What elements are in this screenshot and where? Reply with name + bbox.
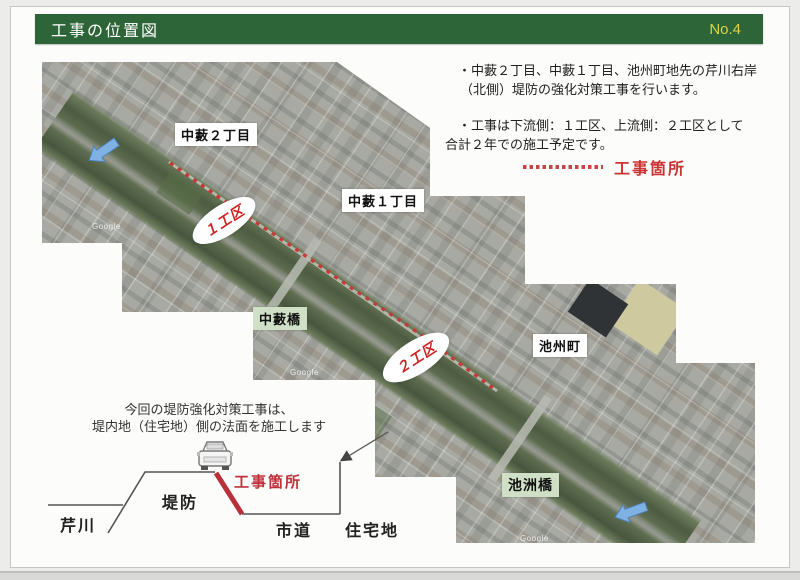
page-title: 工事の位置図: [35, 17, 159, 41]
residential-label: 住宅地: [345, 517, 399, 541]
bridge-label-chisu: 池洲橋: [502, 473, 559, 497]
river-label: 芹川: [60, 512, 96, 536]
flow-arrow-icon: [84, 134, 122, 168]
note-line: ・中藪２丁目、中藪１丁目、池州町地先の芹川右岸: [445, 62, 795, 81]
page-number: No.4: [709, 21, 763, 38]
google-watermark: Google: [92, 222, 121, 231]
road-label: 市道: [276, 517, 312, 541]
note-line: 合計２年での施工予定です。: [445, 136, 795, 155]
work-location-label: 工事箇所: [234, 471, 302, 492]
bridge-label-nakayabu: 中藪橋: [253, 307, 307, 330]
flow-arrow-icon: [612, 497, 650, 526]
embankment-label: 堤防: [162, 489, 198, 513]
legend-label: 工事箇所: [614, 155, 686, 179]
car-icon: [197, 442, 233, 470]
note-line: ・工事は下流側：１工区、上流側：２工区として: [445, 117, 795, 136]
scanned-slide: 工事の位置図 No.4 中藪２丁目 中藪１丁目 池州町 中藪橋 池洲橋 １工区 …: [0, 0, 800, 580]
legend-dotted-line: [523, 165, 603, 169]
header-bar: 工事の位置図 No.4: [35, 14, 763, 44]
google-watermark: Google: [520, 534, 549, 543]
note-line: （北側）堤防の強化対策工事を行います。: [445, 81, 795, 100]
district-label-nakayabu2: 中藪２丁目: [175, 123, 257, 146]
notes-block: ・中藪２丁目、中藪１丁目、池州町地先の芹川右岸 （北側）堤防の強化対策工事を行い…: [445, 62, 795, 154]
district-label-nakayabu1: 中藪１丁目: [342, 189, 424, 212]
google-watermark: Google: [290, 368, 319, 377]
callout-arrow-line: [342, 432, 388, 460]
district-label-chishu: 池州町: [533, 334, 587, 357]
scan-edge-strip: [0, 571, 800, 580]
